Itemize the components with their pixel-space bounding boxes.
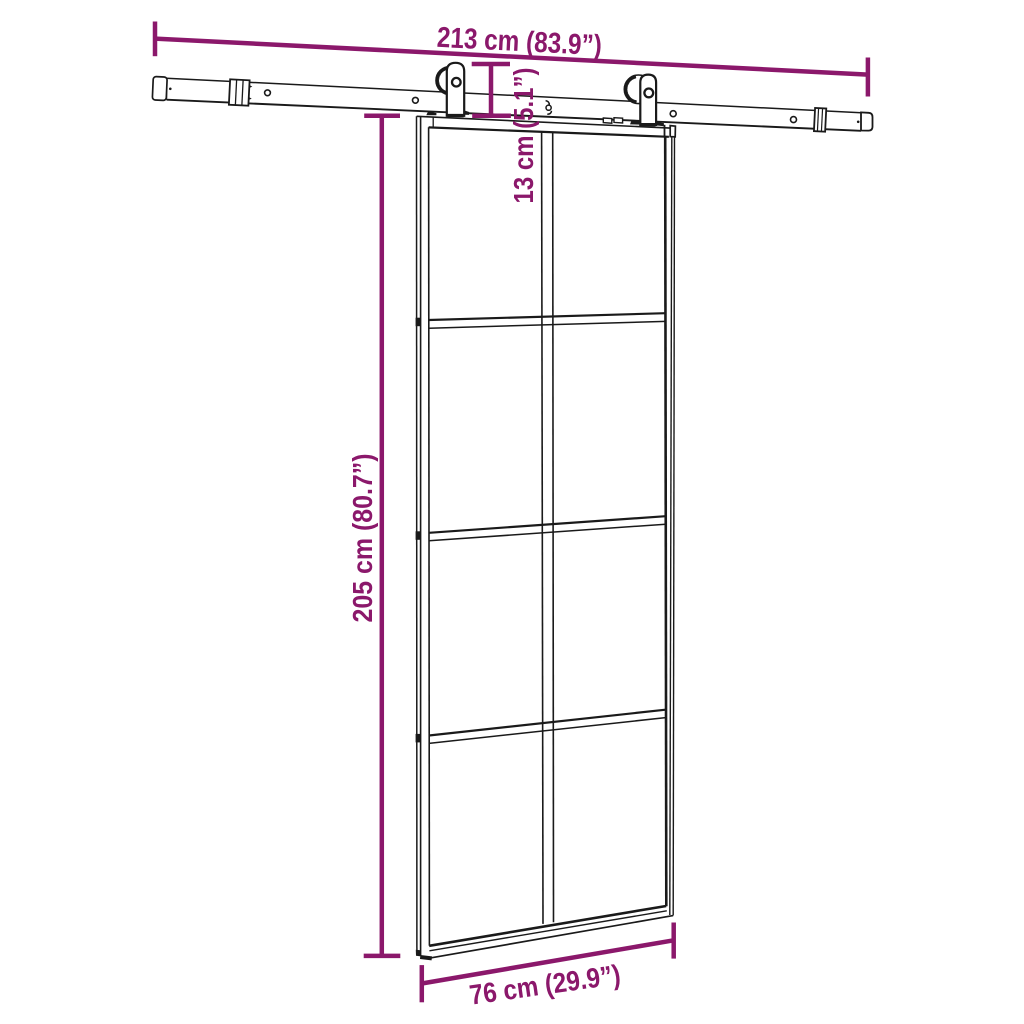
svg-text:76 cm (29.9”): 76 cm (29.9”) [468,959,623,1011]
svg-text:13 cm (5.1”): 13 cm (5.1”) [508,68,539,204]
svg-text:205 cm (80.7”): 205 cm (80.7”) [347,454,378,623]
